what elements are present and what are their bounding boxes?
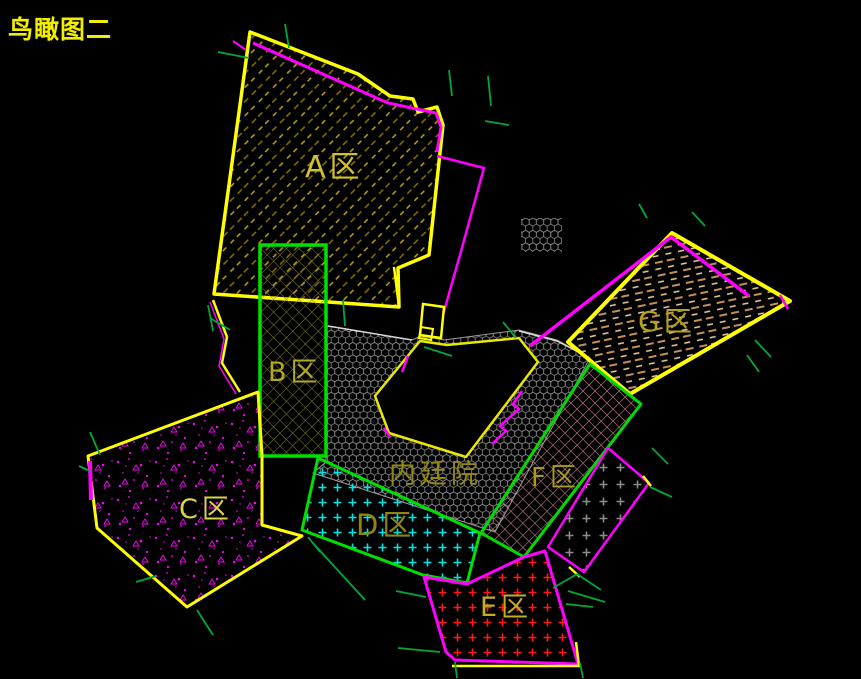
zone-f-label: F区 xyxy=(531,463,580,493)
zone-a-label: A区 xyxy=(305,150,364,185)
zone-e-label: E区 xyxy=(480,592,532,623)
zone-a-corner-magenta-tick xyxy=(233,41,246,50)
courtyard-label: 内廷院 xyxy=(389,459,482,490)
zone-b-label: B区 xyxy=(268,357,322,388)
zone-g-label: G区 xyxy=(638,305,696,338)
zone-d-label: D区 xyxy=(356,508,415,542)
site-plan-drawing: A区 B区 C区 D区 E区 F区 G区 内廷院 xyxy=(0,0,861,679)
zone-c-label: C区 xyxy=(179,494,233,525)
magenta-parcel-outline xyxy=(437,156,484,322)
hex-patch xyxy=(521,218,562,252)
zone-b-area xyxy=(260,245,326,456)
zone-c-left-magenta-segment xyxy=(90,461,91,500)
cad-canvas: A区 B区 C区 D区 E区 F区 G区 内廷院 鸟瞰图二 xyxy=(0,0,861,679)
drawing-title: 鸟瞰图二 xyxy=(8,10,112,46)
